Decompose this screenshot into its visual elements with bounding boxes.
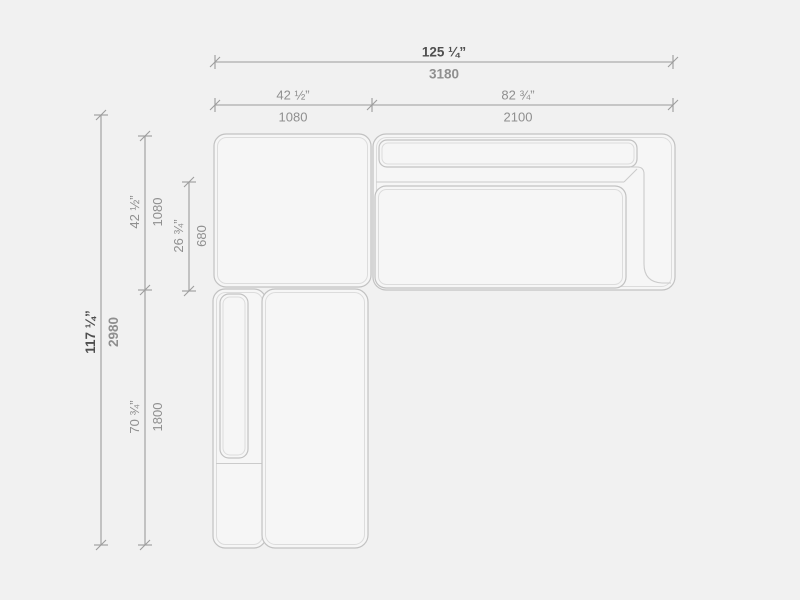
dim-depth-segments: 42 ½” 1080 70 ¾” 1800 (127, 131, 165, 550)
dim-upper-depth-mm-label: 1080 (150, 198, 165, 227)
dim-segment-widths: 42 ½” 1080 82 ¾” 2100 (210, 88, 678, 125)
dim-chaise-length-mm-label: 1800 (150, 403, 165, 432)
dim-total-depth-mm-label: 2980 (106, 317, 121, 347)
corner-seat-module (214, 134, 371, 287)
sofa-seat-cushion (375, 186, 626, 288)
dim-left-width-mm-label: 1080 (279, 110, 308, 125)
dim-upper-depth-inches-label: 42 ½” (127, 195, 142, 228)
chaise-module (213, 289, 368, 548)
dim-chaise-length-inches-label: 70 ¾” (127, 400, 142, 433)
dim-total-width: 125 ¼” 3180 (210, 45, 678, 82)
dim-total-depth-inches-label: 117 ¼” (83, 310, 98, 354)
sectional-sofa-plan: 125 ¼” 3180 42 ½” 1080 82 ¾” 2100 117 ¼”… (0, 0, 800, 600)
dim-total-width-inches-label: 125 ¼” (422, 45, 466, 60)
corner-seat-outline (214, 134, 371, 287)
sofa-backrest-cushion (379, 140, 637, 167)
chaise-armrest-cushion (220, 294, 248, 458)
dim-total-depth: 117 ¼” 2980 (83, 110, 121, 550)
dim-total-width-mm-label: 3180 (429, 67, 459, 82)
dim-right-width-mm-label: 2100 (504, 110, 533, 125)
right-sofa-module (373, 134, 675, 290)
dim-left-width-inches-label: 42 ½” (276, 88, 309, 103)
drawing-canvas: 125 ¼” 3180 42 ½” 1080 82 ¾” 2100 117 ¼”… (0, 0, 800, 600)
dim-right-width-inches-label: 82 ¾” (501, 88, 534, 103)
chaise-seat (262, 289, 368, 548)
dim-seat-depth-inches-label: 26 ¾” (171, 219, 186, 252)
dim-seat-depth: 26 ¾” 680 (171, 177, 209, 296)
dim-seat-depth-mm-label: 680 (194, 225, 209, 247)
